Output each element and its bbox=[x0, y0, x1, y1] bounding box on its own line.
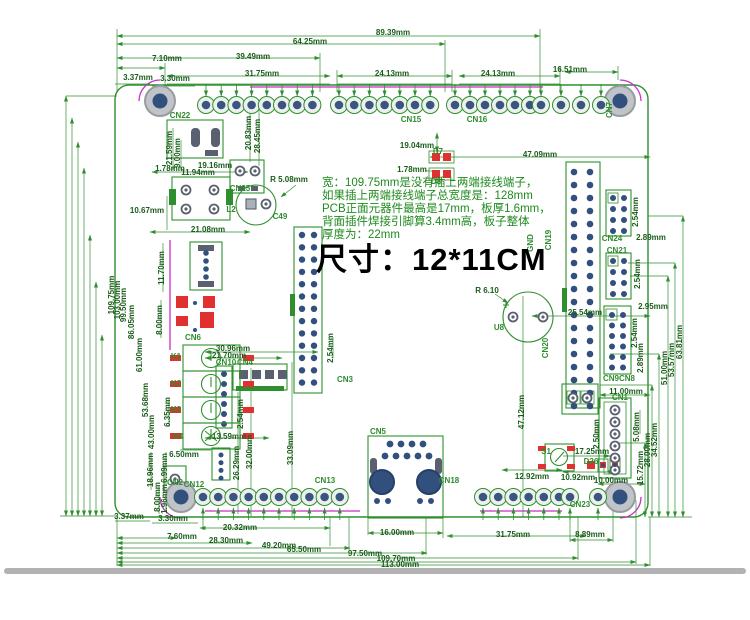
dimension-label: 2.54mm bbox=[237, 399, 245, 429]
component-label: D7 bbox=[433, 148, 443, 156]
dimension-label: 20.32mm bbox=[223, 524, 257, 532]
dimension-label: 47.09mm bbox=[523, 151, 557, 159]
dimension-label: 89.39mm bbox=[376, 29, 410, 37]
dimension-label: 2.54mm bbox=[327, 333, 335, 363]
component-label: CN9 bbox=[603, 375, 619, 383]
dimension-label: 20.83mm bbox=[245, 116, 253, 150]
dimension-label: 53.68mm bbox=[142, 383, 150, 417]
component-label: CN2 bbox=[167, 479, 183, 487]
dimension-label: 10.00mm bbox=[594, 477, 628, 485]
dimension-label: R 5.08mm bbox=[270, 176, 308, 184]
dimension-label: 31.75mm bbox=[245, 70, 279, 78]
component-label: CN23 bbox=[570, 501, 590, 509]
dimension-label: 1.96mm bbox=[161, 484, 169, 514]
separator-bar bbox=[4, 568, 746, 574]
component-label: CN8 bbox=[619, 375, 635, 383]
component-label: CN21 bbox=[607, 247, 627, 255]
dimension-label: 10.67mm bbox=[130, 207, 164, 215]
component-label: CN5 bbox=[370, 428, 386, 436]
dimension-label: 64.25mm bbox=[293, 38, 327, 46]
dimension-label: 34.52mm bbox=[651, 423, 659, 457]
dimension-label: 5.08mm bbox=[633, 412, 641, 442]
component-label: S1 bbox=[541, 448, 551, 456]
dimension-label: 65.50mm bbox=[287, 546, 321, 554]
component-label: CN10 bbox=[216, 359, 236, 367]
component-label: CN18 bbox=[439, 477, 459, 485]
component-label: CN3 bbox=[337, 376, 353, 384]
dimension-label: 25.54mm bbox=[568, 309, 602, 317]
component-label: CN25 bbox=[230, 185, 250, 193]
component-label: U8 bbox=[494, 324, 504, 332]
dimension-label: 63.81mm bbox=[676, 325, 684, 359]
dimension-label: 31.75mm bbox=[496, 531, 530, 539]
dimension-label: 8.00mm bbox=[156, 305, 164, 335]
notes-block: 宽：109.75mm是没有插上两端接线端子， 如果插上两端接线端子总宽度是：12… bbox=[322, 177, 551, 242]
component-label: K2 bbox=[171, 380, 181, 388]
dimension-label: 26.29mm bbox=[233, 446, 241, 480]
component-label: CN22 bbox=[170, 112, 190, 120]
dimension-label: 2.89mm bbox=[636, 234, 666, 242]
dimension-label: 7.10mm bbox=[152, 55, 182, 63]
component-label: K1 bbox=[171, 353, 181, 361]
dimension-label: 11.94mm bbox=[181, 169, 215, 177]
dimension-label: 43.00mm bbox=[148, 415, 156, 449]
dimension-label: 24.13mm bbox=[481, 70, 515, 78]
note-line: PCB正面元器件最高是17mm，板厚1.6mm， bbox=[322, 203, 551, 216]
dimension-label: 61.00mm bbox=[136, 338, 144, 372]
component-label: D26 bbox=[584, 458, 599, 466]
component-label: CN12 bbox=[184, 481, 204, 489]
dimension-label: 1.78mm bbox=[397, 166, 427, 174]
dimension-label: 33.09mm bbox=[287, 431, 295, 465]
dimension-label: 28.45mm bbox=[254, 119, 262, 153]
dimension-label: 2.54mm bbox=[632, 197, 640, 227]
note-line: 背面插件焊接引脚算3.4mm高，板子整体 bbox=[322, 216, 551, 229]
component-label: K3 bbox=[171, 406, 181, 414]
component-label: L2 bbox=[226, 206, 235, 214]
dimension-label: 16.00mm bbox=[380, 529, 414, 537]
note-line: 宽：109.75mm是没有插上两端接线端子， bbox=[322, 177, 551, 190]
dimension-label: 3.30mm bbox=[160, 75, 190, 83]
dimension-label: 6.50mm bbox=[169, 451, 199, 459]
dimension-label: 16.51mm bbox=[553, 66, 587, 74]
dimension-label: 12.92mm bbox=[515, 473, 549, 481]
size-label: 尺寸：12*11CM bbox=[316, 234, 547, 279]
note-line: 如果插上两端接线端子总宽度是：128mm bbox=[322, 190, 551, 203]
dimension-label: 17.25mm bbox=[575, 448, 609, 456]
component-label: CN1 bbox=[612, 394, 628, 402]
labels-layer: 89.39mm64.25mm39.49mm7.10mm31.75mm24.13m… bbox=[0, 0, 750, 620]
dimension-label: R 6.10 bbox=[475, 287, 499, 295]
component-label: CN4 bbox=[237, 359, 253, 367]
dimension-label: 3.37mm bbox=[114, 513, 144, 521]
dimension-label: 2.95mm bbox=[638, 303, 668, 311]
component-label: CN13 bbox=[315, 477, 335, 485]
dimension-label: 19.04mm bbox=[400, 142, 434, 150]
dimension-label: 10.92mm bbox=[561, 474, 595, 482]
dimension-label: 24.13mm bbox=[375, 70, 409, 78]
dimension-label: 3.30mm bbox=[158, 515, 188, 523]
component-label: CN15 bbox=[401, 116, 421, 124]
dimension-label: 7.60mm bbox=[167, 533, 197, 541]
dimension-label: 32.00mm bbox=[246, 435, 254, 469]
component-label: CN7 bbox=[606, 102, 614, 118]
dimension-label: 86.05mm bbox=[128, 305, 136, 339]
dimension-label: 8.89mm bbox=[575, 531, 605, 539]
component-label: CN24 bbox=[602, 235, 622, 243]
dimension-label: 11.70mm bbox=[158, 251, 166, 285]
dimension-label: 28.30mm bbox=[209, 537, 243, 545]
component-label: C49 bbox=[273, 213, 288, 221]
dimension-label: 13.59mm bbox=[212, 433, 246, 441]
component-label: CN6 bbox=[185, 334, 201, 342]
component-label: CN20 bbox=[542, 338, 550, 358]
dimension-label: 47.12mm bbox=[518, 395, 526, 429]
component-label: K4 bbox=[173, 433, 183, 441]
dimension-label: 21.08mm bbox=[191, 226, 225, 234]
dimension-label: 2.54mm bbox=[634, 259, 642, 289]
dimension-label: 39.49mm bbox=[236, 53, 270, 61]
component-label: CN16 bbox=[467, 116, 487, 124]
dimension-label: 3.37mm bbox=[123, 74, 153, 82]
dimension-label: 2.50mm bbox=[593, 419, 601, 449]
pcb-dimension-drawing: 89.39mm64.25mm39.49mm7.10mm31.75mm24.13m… bbox=[0, 0, 750, 620]
dimension-label: 2.89mm bbox=[637, 343, 645, 373]
